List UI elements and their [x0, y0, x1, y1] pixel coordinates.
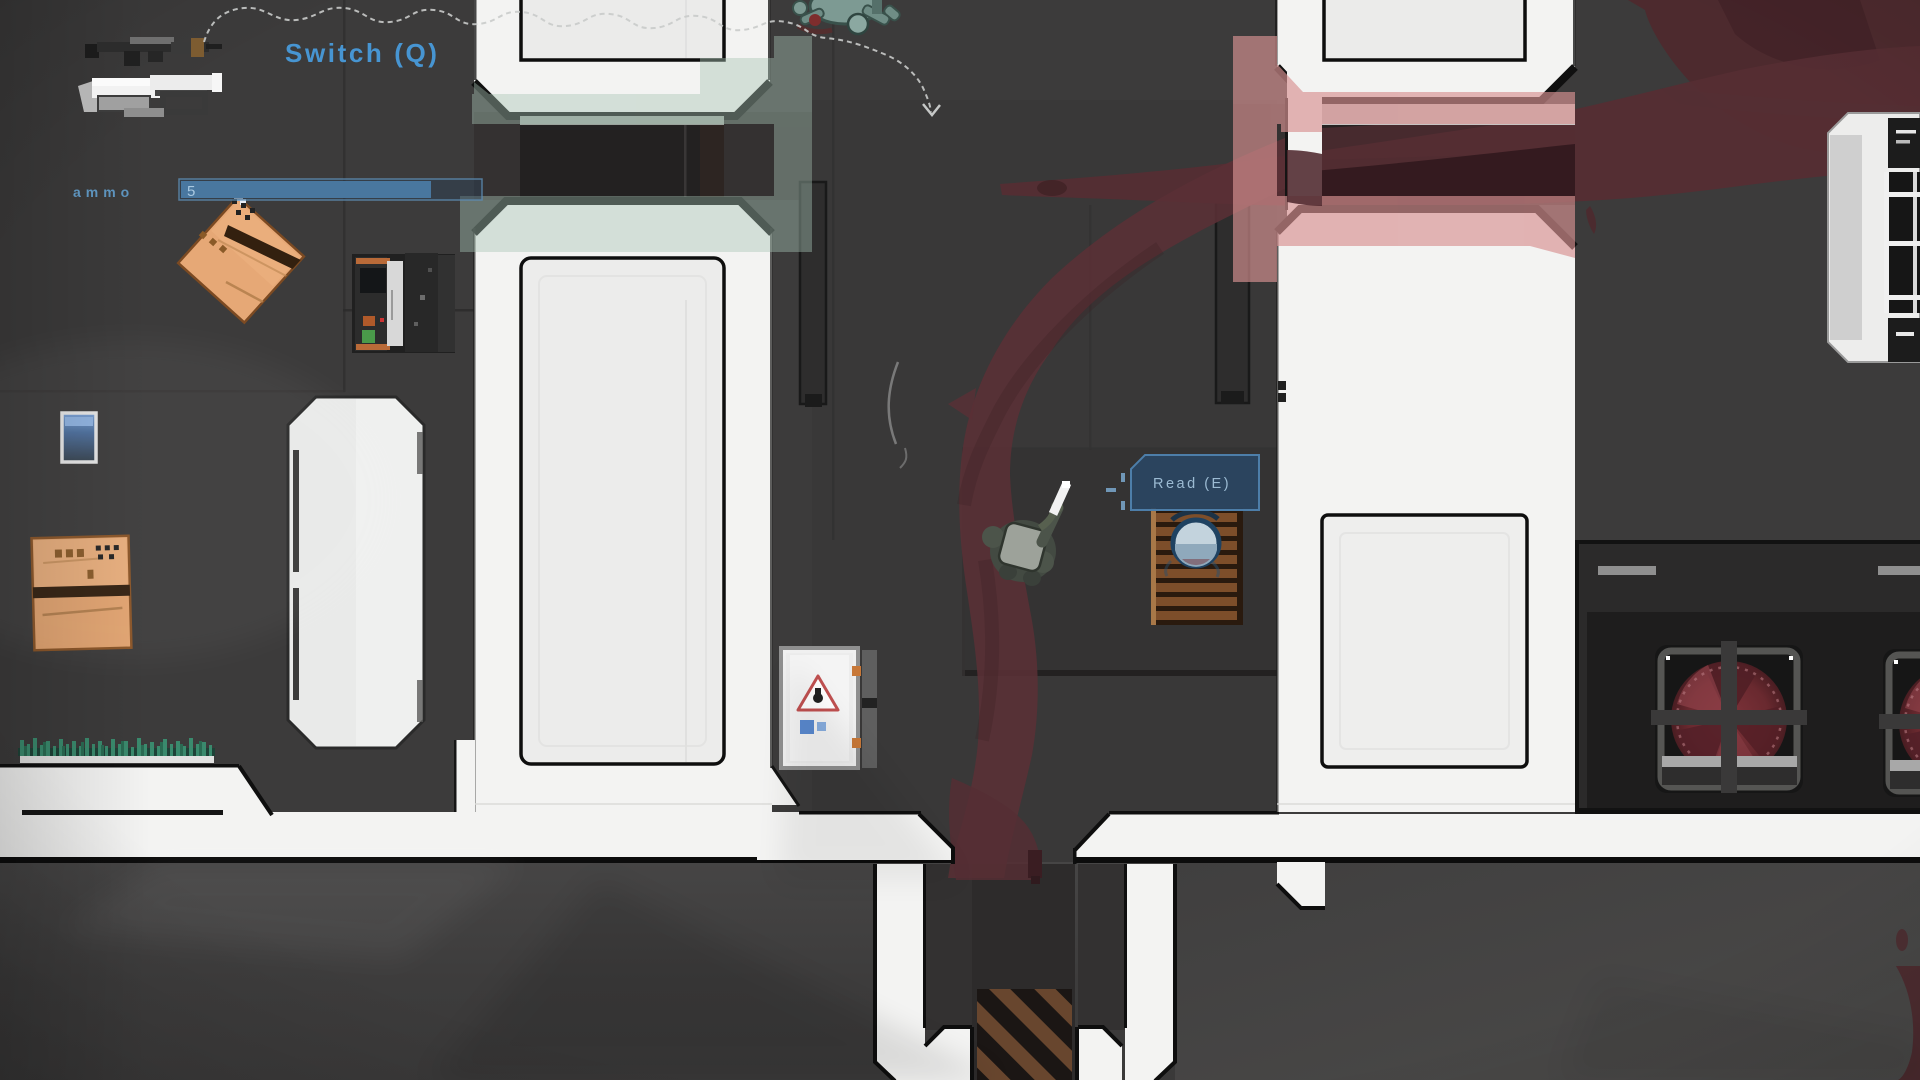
svg-text:ammo: ammo — [73, 184, 134, 200]
svg-text:Read (E): Read (E) — [1153, 476, 1231, 492]
svg-text:5: 5 — [187, 183, 195, 200]
svg-text:Switch (Q): Switch (Q) — [285, 38, 440, 68]
